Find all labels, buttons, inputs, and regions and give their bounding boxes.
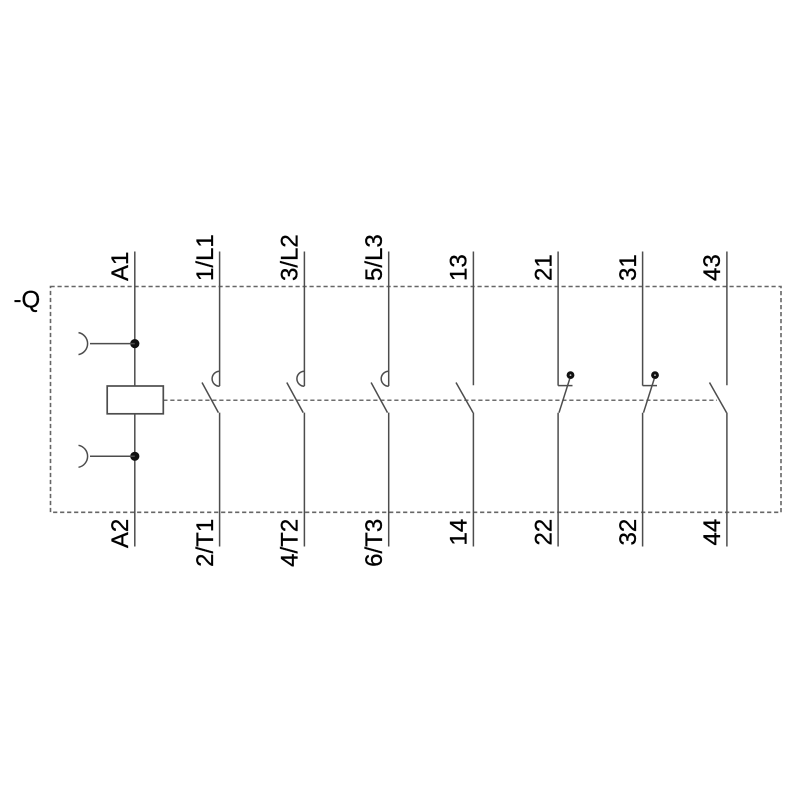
svg-text:-Q: -Q <box>14 287 41 314</box>
svg-text:21: 21 <box>530 254 557 281</box>
svg-text:3/L2: 3/L2 <box>277 234 304 281</box>
svg-text:32: 32 <box>615 519 642 546</box>
svg-text:2/T1: 2/T1 <box>192 519 219 567</box>
svg-text:5/L3: 5/L3 <box>361 234 388 281</box>
svg-text:22: 22 <box>530 519 557 546</box>
svg-text:14: 14 <box>446 519 473 546</box>
svg-text:31: 31 <box>615 254 642 281</box>
svg-text:4/T2: 4/T2 <box>277 519 304 567</box>
svg-text:13: 13 <box>446 254 473 281</box>
svg-text:6/T3: 6/T3 <box>361 519 388 567</box>
svg-text:A1: A1 <box>107 252 134 281</box>
svg-text:1/L1: 1/L1 <box>192 234 219 281</box>
svg-text:43: 43 <box>699 254 726 281</box>
svg-text:A2: A2 <box>107 519 134 548</box>
svg-text:44: 44 <box>699 519 726 546</box>
